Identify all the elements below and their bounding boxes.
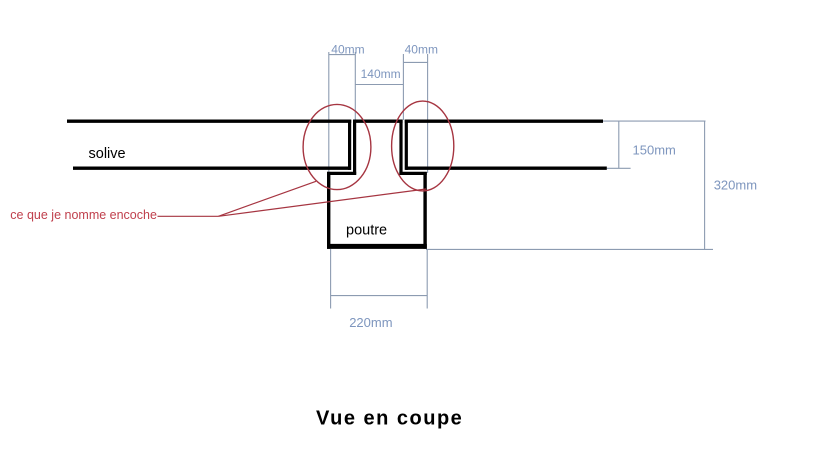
svg-text:Vue en coupe: Vue en coupe xyxy=(316,407,463,429)
svg-text:ce que je nomme encoche: ce que je nomme encoche xyxy=(10,208,157,222)
svg-text:40mm: 40mm xyxy=(405,43,438,57)
svg-text:140mm: 140mm xyxy=(361,67,401,81)
svg-text:220mm: 220mm xyxy=(349,315,392,330)
svg-text:40mm: 40mm xyxy=(331,43,364,57)
svg-text:poutre: poutre xyxy=(346,223,387,239)
svg-text:150mm: 150mm xyxy=(633,143,676,158)
svg-text:solive: solive xyxy=(89,146,126,162)
svg-text:320mm: 320mm xyxy=(714,178,757,193)
